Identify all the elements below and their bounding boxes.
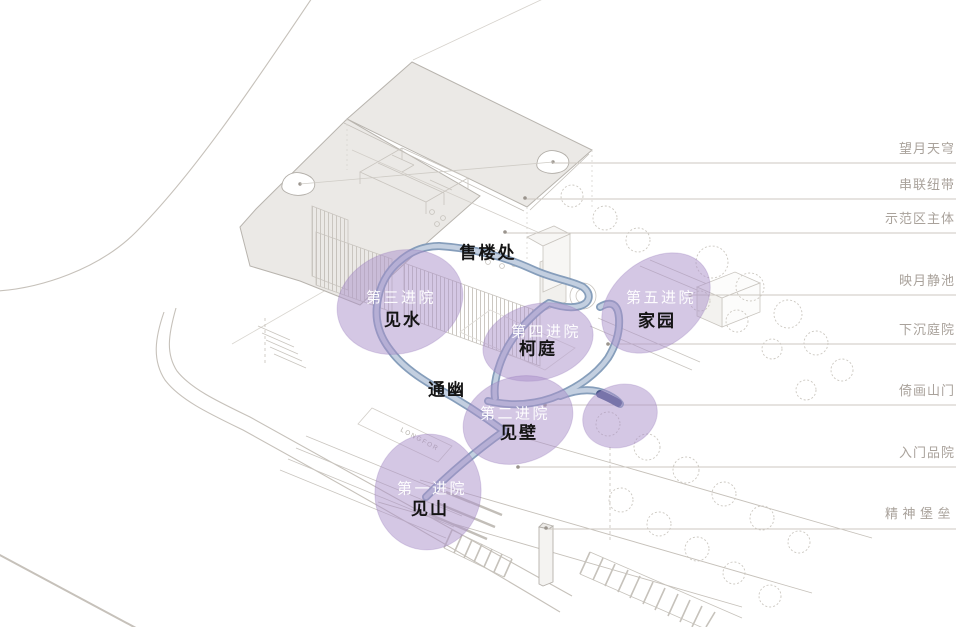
callout-demo-area-main: 示范区主体	[885, 211, 955, 227]
callout-moon-still-pond: 映月静池	[899, 273, 955, 289]
oculus-left	[282, 173, 315, 196]
callout-sunken-courtyard: 下沉庭院	[899, 322, 955, 338]
courtyard-3-label: 第三进院	[366, 287, 436, 308]
callout-spirit-landmark: 精神堡垒	[885, 506, 955, 522]
courtyard-2-name: 见壁	[500, 419, 538, 444]
sales-office-label: 售楼处	[460, 239, 517, 264]
courtyard-5-name: 家园	[638, 307, 676, 332]
diagram-canvas: LONGFOR	[0, 0, 960, 627]
courtyard-3-name: 见水	[384, 306, 422, 331]
callout-moon-sky-dome: 望月天穹	[899, 141, 955, 157]
callout-linking-ribbon: 串联纽带	[899, 177, 955, 193]
spirit-pylon	[539, 523, 553, 586]
courtyard-5-label: 第五进院	[626, 287, 696, 308]
courtyard-blobs	[323, 232, 729, 557]
crosswalk-stripes	[444, 530, 742, 627]
courtyard-1-name: 见山	[411, 495, 449, 520]
callout-entry-court: 入门品院	[899, 445, 955, 461]
callout-picture-gate: 倚画山门	[899, 383, 955, 399]
courtyard-4-name: 柯庭	[519, 335, 557, 360]
corridor-label: 通幽	[428, 376, 466, 401]
site-axonometric-drawing: LONGFOR	[0, 0, 960, 627]
